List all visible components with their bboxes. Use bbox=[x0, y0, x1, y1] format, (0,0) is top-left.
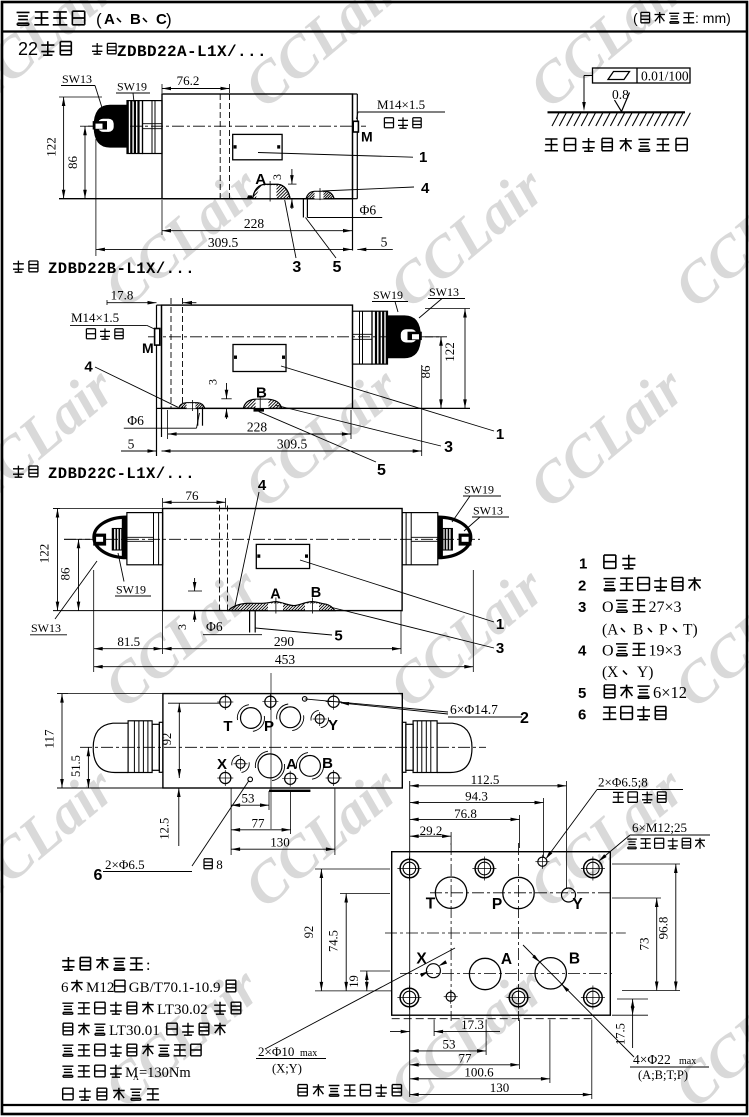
svg-text:M14×1.5: M14×1.5 bbox=[71, 310, 119, 325]
svg-text:P: P bbox=[264, 718, 274, 735]
svg-text::: : bbox=[146, 957, 150, 974]
svg-text:2: 2 bbox=[578, 578, 586, 595]
svg-text:6: 6 bbox=[578, 707, 586, 724]
svg-text:A: A bbox=[104, 11, 115, 28]
svg-text:96.8: 96.8 bbox=[656, 917, 671, 940]
svg-text:A: A bbox=[255, 171, 266, 188]
svg-text:4: 4 bbox=[84, 359, 93, 376]
svg-text:LT30.02: LT30.02 bbox=[157, 1002, 208, 1018]
svg-text:4: 4 bbox=[421, 180, 430, 197]
svg-text:A: A bbox=[501, 951, 512, 968]
svg-text:19: 19 bbox=[347, 975, 361, 988]
svg-text:92: 92 bbox=[302, 926, 316, 939]
svg-text:5: 5 bbox=[334, 628, 342, 645]
svg-text:ZDBD22A-L1X/...: ZDBD22A-L1X/... bbox=[117, 43, 267, 61]
svg-text:O: O bbox=[602, 599, 614, 616]
svg-text:A: A bbox=[270, 587, 281, 603]
svg-text:6×M12;25: 6×M12;25 bbox=[632, 820, 687, 835]
svg-text:P: P bbox=[492, 896, 502, 913]
svg-text:SW19: SW19 bbox=[116, 583, 146, 597]
svg-text:51.5: 51.5 bbox=[69, 755, 83, 777]
svg-text:86: 86 bbox=[418, 365, 433, 379]
svg-text:B: B bbox=[130, 11, 141, 28]
svg-text:M: M bbox=[361, 129, 373, 145]
svg-text:(X;Y): (X;Y) bbox=[272, 1062, 302, 1076]
svg-text:6×12: 6×12 bbox=[653, 683, 687, 702]
svg-text:76.8: 76.8 bbox=[454, 806, 477, 821]
svg-text:=130Nm: =130Nm bbox=[139, 1065, 191, 1081]
svg-text:3: 3 bbox=[292, 259, 301, 276]
svg-text:SW13: SW13 bbox=[473, 504, 503, 518]
svg-text:T): T) bbox=[683, 622, 698, 639]
svg-text:86: 86 bbox=[58, 567, 73, 581]
svg-text:max: max bbox=[300, 1048, 317, 1059]
svg-text:Φ6: Φ6 bbox=[206, 619, 223, 634]
svg-text:74.5: 74.5 bbox=[327, 930, 341, 952]
svg-text:6×Φ14.7: 6×Φ14.7 bbox=[450, 702, 498, 717]
svg-text:86: 86 bbox=[65, 156, 80, 170]
svg-text:5: 5 bbox=[128, 437, 135, 452]
svg-text:290: 290 bbox=[274, 634, 295, 649]
svg-text:29.2: 29.2 bbox=[420, 823, 443, 838]
svg-text:LT30.01: LT30.01 bbox=[109, 1023, 160, 1039]
svg-text:M12: M12 bbox=[86, 980, 114, 996]
svg-text:(: ( bbox=[633, 10, 638, 26]
svg-text:4: 4 bbox=[578, 643, 587, 660]
svg-text:130: 130 bbox=[490, 1080, 510, 1095]
svg-text:22: 22 bbox=[18, 39, 38, 59]
svg-text:max: max bbox=[679, 1056, 696, 1067]
svg-text:B: B bbox=[569, 950, 580, 967]
svg-text:X: X bbox=[416, 950, 427, 967]
svg-text:94.3: 94.3 bbox=[465, 788, 488, 803]
svg-text:19×3: 19×3 bbox=[649, 643, 682, 660]
svg-text:122: 122 bbox=[37, 544, 52, 564]
svg-text:228: 228 bbox=[244, 216, 265, 231]
svg-text:2: 2 bbox=[520, 710, 529, 727]
svg-text:SW19: SW19 bbox=[464, 483, 494, 497]
svg-text:P: P bbox=[659, 622, 668, 639]
svg-text:GB/T70.1-10.9: GB/T70.1-10.9 bbox=[129, 980, 221, 996]
svg-text:309.5: 309.5 bbox=[208, 235, 239, 250]
svg-text:SW13: SW13 bbox=[429, 285, 459, 299]
svg-text:B: B bbox=[322, 755, 333, 772]
svg-text:100.6: 100.6 bbox=[464, 1064, 494, 1079]
svg-text:3: 3 bbox=[444, 439, 453, 456]
svg-text:6: 6 bbox=[61, 980, 69, 996]
svg-text:3: 3 bbox=[578, 599, 586, 616]
svg-text:453: 453 bbox=[275, 652, 296, 667]
svg-text:3: 3 bbox=[496, 640, 504, 657]
svg-text:: mm): : mm) bbox=[695, 10, 731, 26]
svg-text:1: 1 bbox=[496, 426, 504, 443]
svg-text:76: 76 bbox=[186, 488, 200, 503]
svg-text:228: 228 bbox=[247, 420, 268, 435]
svg-text:Y): Y) bbox=[637, 664, 653, 681]
svg-text:): ) bbox=[166, 10, 172, 29]
svg-text:6: 6 bbox=[94, 867, 103, 884]
svg-text:3: 3 bbox=[175, 624, 189, 630]
svg-text:130: 130 bbox=[270, 835, 290, 850]
svg-text:309.5: 309.5 bbox=[277, 437, 308, 452]
svg-text:5: 5 bbox=[578, 685, 586, 702]
svg-text:Φ6: Φ6 bbox=[127, 413, 144, 428]
svg-text:17.5: 17.5 bbox=[614, 1023, 628, 1045]
svg-text:17.3: 17.3 bbox=[461, 1017, 484, 1032]
svg-text:SW13: SW13 bbox=[31, 621, 61, 635]
svg-text:Y: Y bbox=[328, 717, 338, 734]
svg-text:1: 1 bbox=[496, 616, 504, 633]
svg-text:X: X bbox=[217, 756, 227, 773]
svg-text:2×Φ6.5: 2×Φ6.5 bbox=[105, 857, 145, 872]
svg-text:B: B bbox=[633, 622, 643, 639]
svg-text:2×Φ6.5;8: 2×Φ6.5;8 bbox=[598, 775, 648, 790]
svg-text:3: 3 bbox=[270, 174, 284, 180]
svg-text:(X: (X bbox=[602, 664, 618, 681]
svg-text:53: 53 bbox=[443, 1036, 456, 1051]
svg-text:4×Φ22: 4×Φ22 bbox=[633, 1052, 671, 1067]
svg-text:(A: (A bbox=[602, 622, 619, 639]
svg-text:5: 5 bbox=[377, 462, 386, 479]
svg-text:5: 5 bbox=[381, 235, 388, 250]
svg-text:T: T bbox=[223, 718, 232, 735]
svg-text:ZDBD22B-L1X/...: ZDBD22B-L1X/... bbox=[48, 260, 195, 278]
svg-text:8: 8 bbox=[216, 857, 223, 872]
svg-text:ZDBD22C-L1X/...: ZDBD22C-L1X/... bbox=[48, 465, 195, 483]
svg-text:4: 4 bbox=[258, 477, 267, 494]
svg-text:3: 3 bbox=[206, 379, 220, 385]
svg-text:M14×1.5: M14×1.5 bbox=[377, 97, 425, 112]
svg-text:73: 73 bbox=[637, 938, 652, 951]
svg-text:12.5: 12.5 bbox=[158, 818, 172, 840]
svg-text:B: B bbox=[311, 585, 321, 601]
svg-text:SW13: SW13 bbox=[62, 72, 92, 86]
svg-text:1: 1 bbox=[419, 149, 427, 166]
svg-text:77: 77 bbox=[252, 815, 266, 830]
svg-text:76.2: 76.2 bbox=[177, 73, 200, 88]
svg-text:112.5: 112.5 bbox=[471, 772, 500, 787]
svg-text:17.8: 17.8 bbox=[111, 288, 134, 303]
svg-text:M: M bbox=[142, 340, 154, 356]
svg-text:81.5: 81.5 bbox=[117, 634, 140, 649]
svg-text:T: T bbox=[426, 895, 436, 912]
svg-text:5: 5 bbox=[333, 259, 342, 276]
svg-text:SW19: SW19 bbox=[373, 288, 403, 302]
svg-text:Φ6: Φ6 bbox=[360, 203, 377, 218]
svg-text:(: ( bbox=[96, 10, 102, 29]
svg-text:O: O bbox=[602, 643, 614, 660]
svg-text:(A;B;T;P): (A;B;T;P) bbox=[638, 1068, 688, 1082]
svg-text:27×3: 27×3 bbox=[649, 599, 682, 616]
svg-text:2×Φ10: 2×Φ10 bbox=[258, 1044, 294, 1059]
svg-text:117: 117 bbox=[42, 729, 57, 749]
svg-text:B: B bbox=[256, 385, 267, 402]
svg-text:77: 77 bbox=[459, 1050, 473, 1065]
svg-text:SW19: SW19 bbox=[117, 80, 147, 94]
svg-text:0.01/100: 0.01/100 bbox=[641, 68, 689, 83]
svg-text:92: 92 bbox=[160, 733, 174, 746]
svg-text:122: 122 bbox=[442, 342, 457, 362]
svg-text:A: A bbox=[286, 756, 297, 773]
svg-text:1: 1 bbox=[579, 556, 587, 573]
svg-text:122: 122 bbox=[44, 137, 59, 157]
svg-text:53: 53 bbox=[242, 791, 255, 806]
